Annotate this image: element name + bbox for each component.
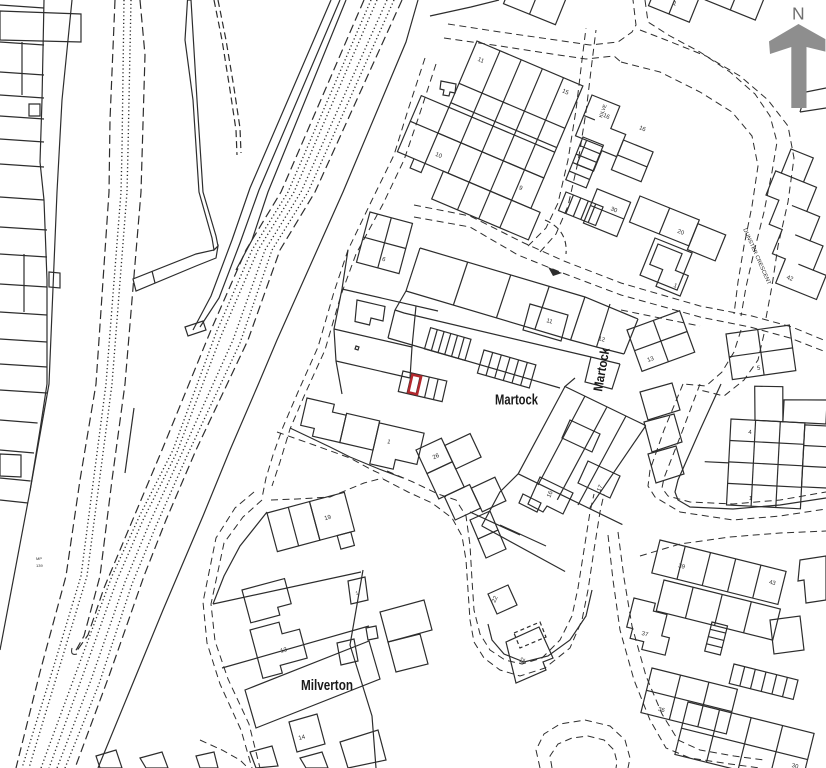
svg-text:N: N [792, 4, 805, 24]
svg-text:139: 139 [36, 563, 43, 568]
svg-text:Martock: Martock [495, 393, 539, 409]
svg-text:MP: MP [36, 556, 42, 561]
svg-text:30: 30 [791, 763, 800, 768]
svg-text:Milverton: Milverton [301, 677, 353, 694]
